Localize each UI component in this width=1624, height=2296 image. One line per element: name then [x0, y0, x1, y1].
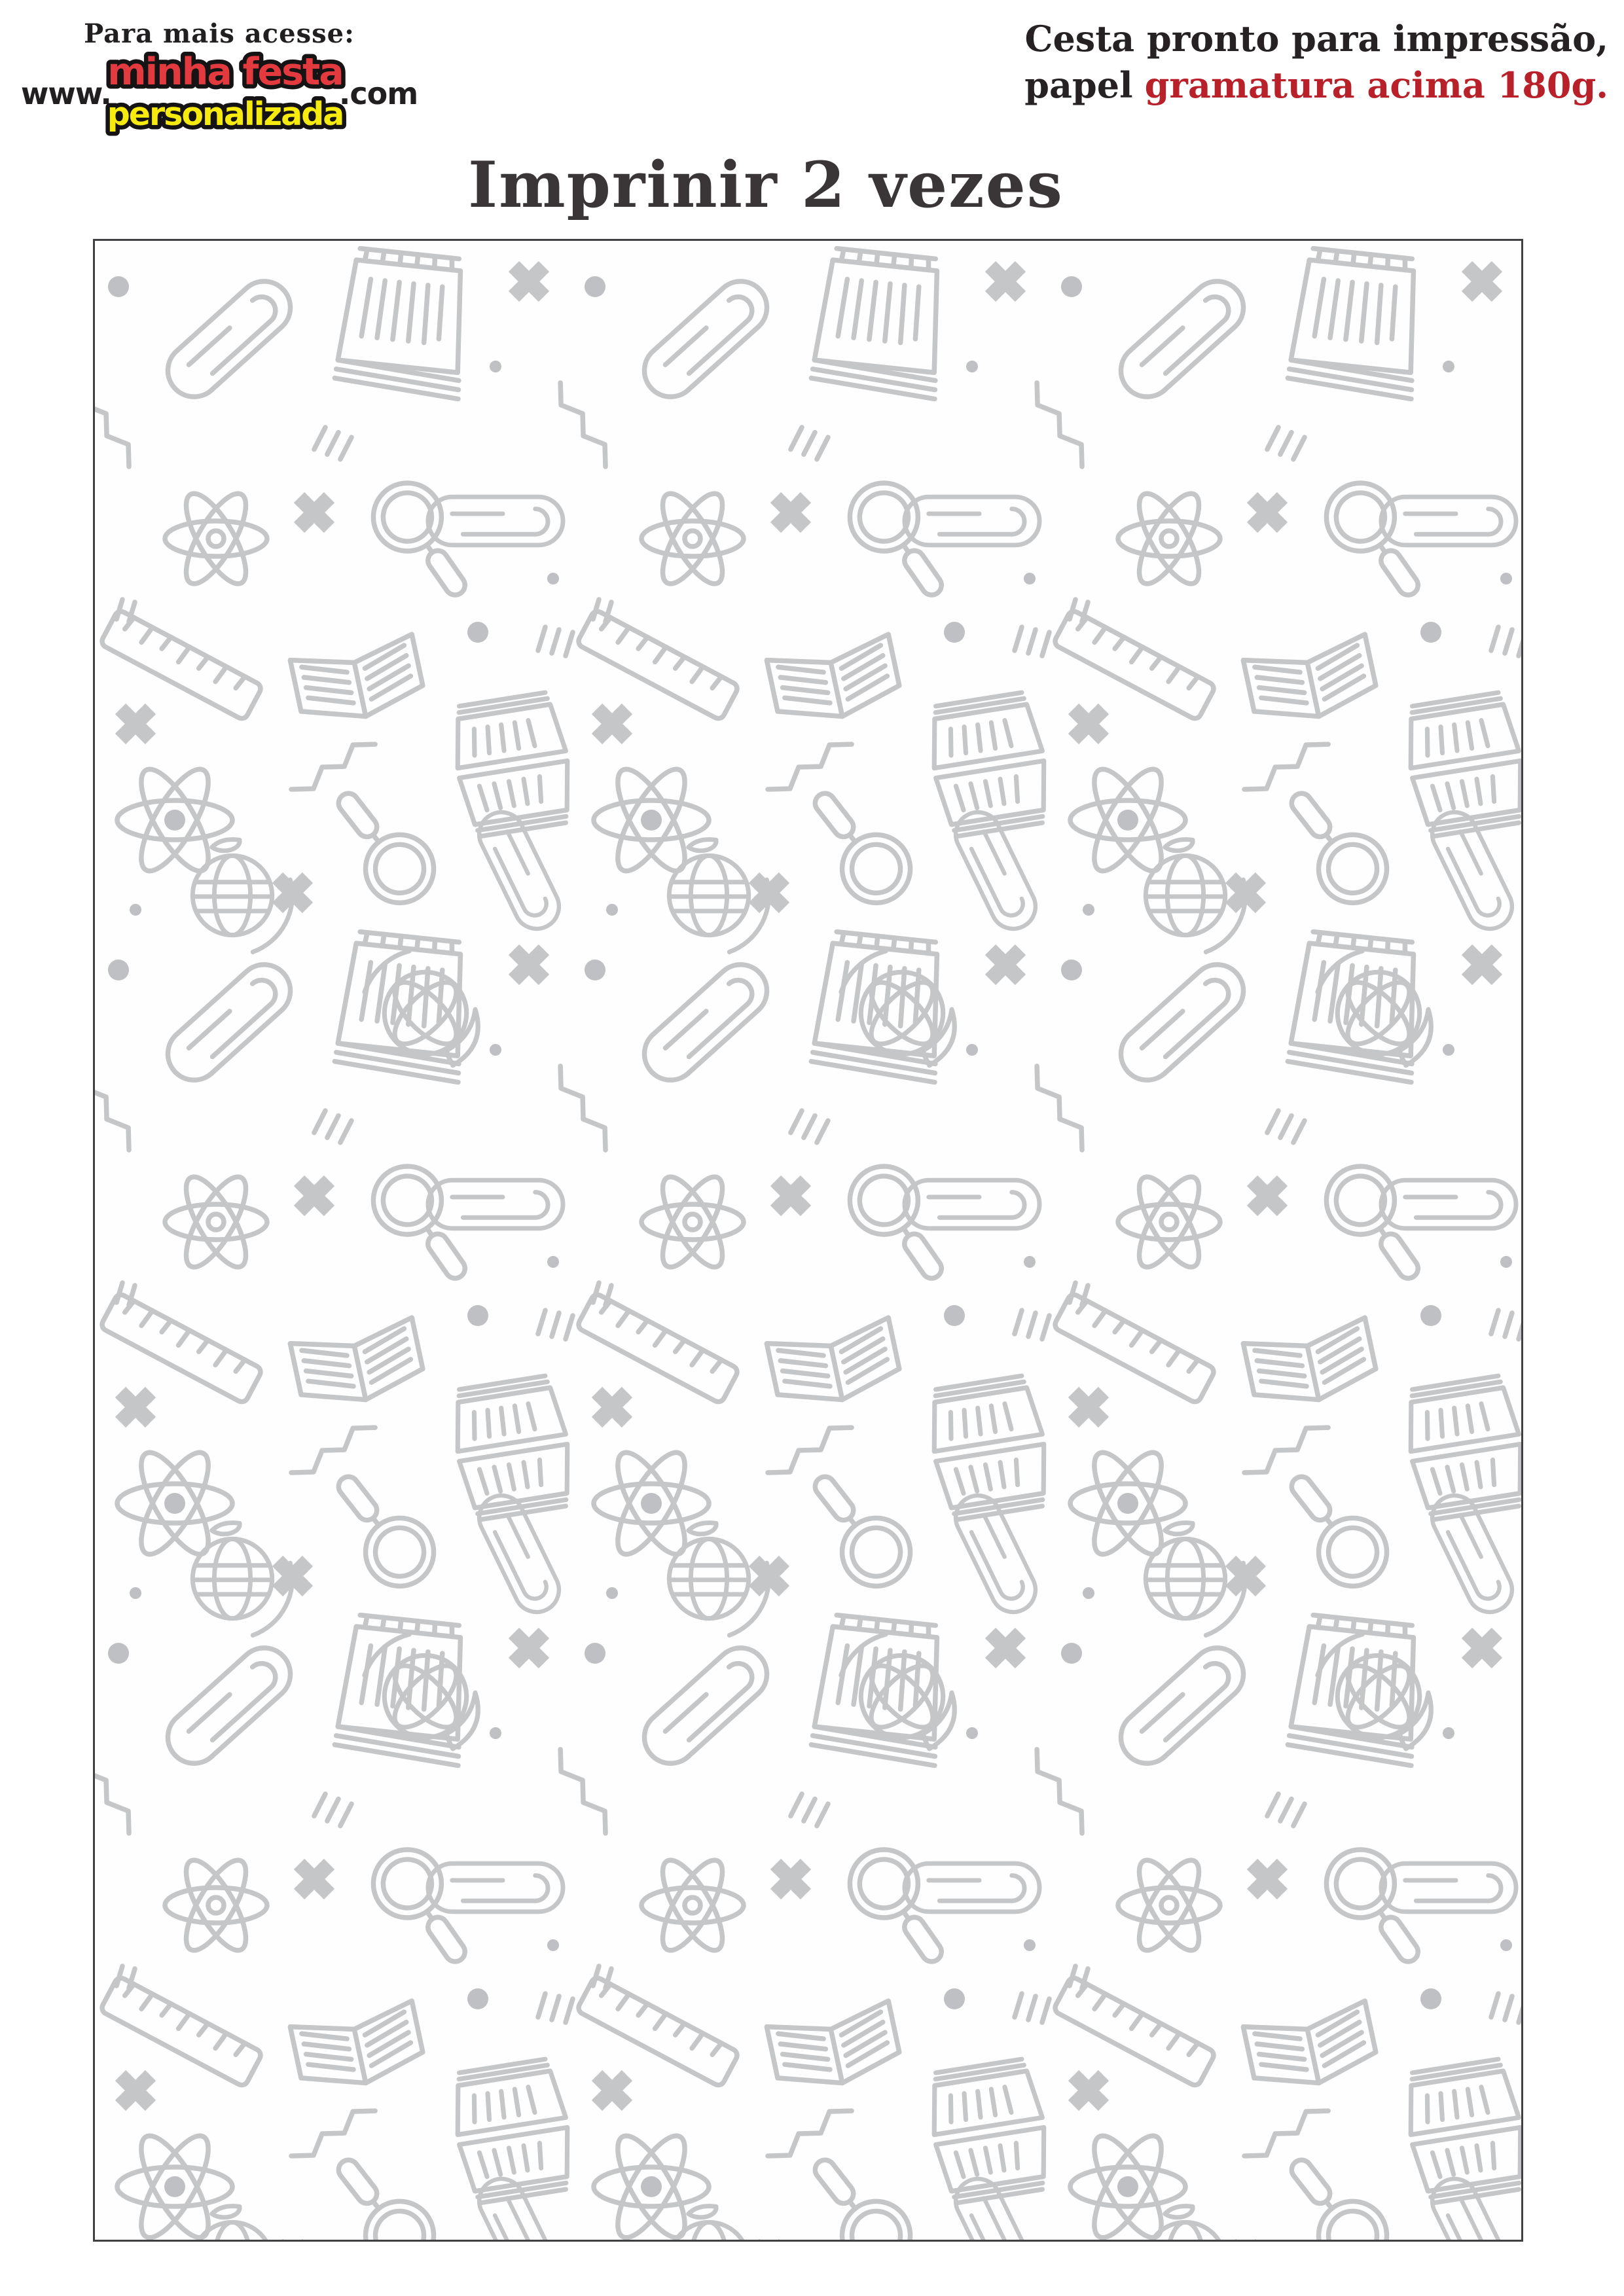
- page-title: Imprinir 2 vezes: [0, 148, 1532, 222]
- pattern-tile: [1022, 1614, 1521, 2240]
- print-instructions-line2: papelgramatura acima 180g.: [1024, 62, 1608, 109]
- promo-text: Para mais acesse:: [33, 18, 406, 49]
- pattern-tile: [95, 247, 577, 1066]
- url-com: .com: [339, 76, 418, 111]
- pattern-tile: [545, 931, 1053, 1749]
- school-pattern-svg: [95, 241, 1521, 2240]
- pattern-tile: [1022, 247, 1521, 1066]
- print-instructions: Cesta pronto para impressão, papelgramat…: [1024, 16, 1608, 109]
- pattern-tile: [95, 1614, 577, 2240]
- pattern-tile: [95, 931, 577, 1749]
- site-url: www. minha festa personalizada .com: [33, 49, 406, 138]
- pattern-tile: [545, 1614, 1053, 2240]
- paper-weight-highlight: gramatura acima 180g.: [1145, 64, 1608, 106]
- brand-logo-line1: minha festa: [107, 50, 343, 94]
- site-promo-block: Para mais acesse: www. minha festa perso…: [33, 18, 406, 138]
- brand-logo-line2: personalizada: [107, 96, 344, 133]
- pattern-sheet: [93, 239, 1523, 2242]
- pattern-tile: [545, 247, 1053, 1066]
- print-instructions-line1: Cesta pronto para impressão,: [1024, 16, 1608, 62]
- paper-word: papel: [1024, 64, 1132, 106]
- brand-logo: minha festa personalizada: [115, 49, 335, 138]
- pattern-tile: [1022, 931, 1521, 1749]
- url-www: www.: [21, 76, 111, 111]
